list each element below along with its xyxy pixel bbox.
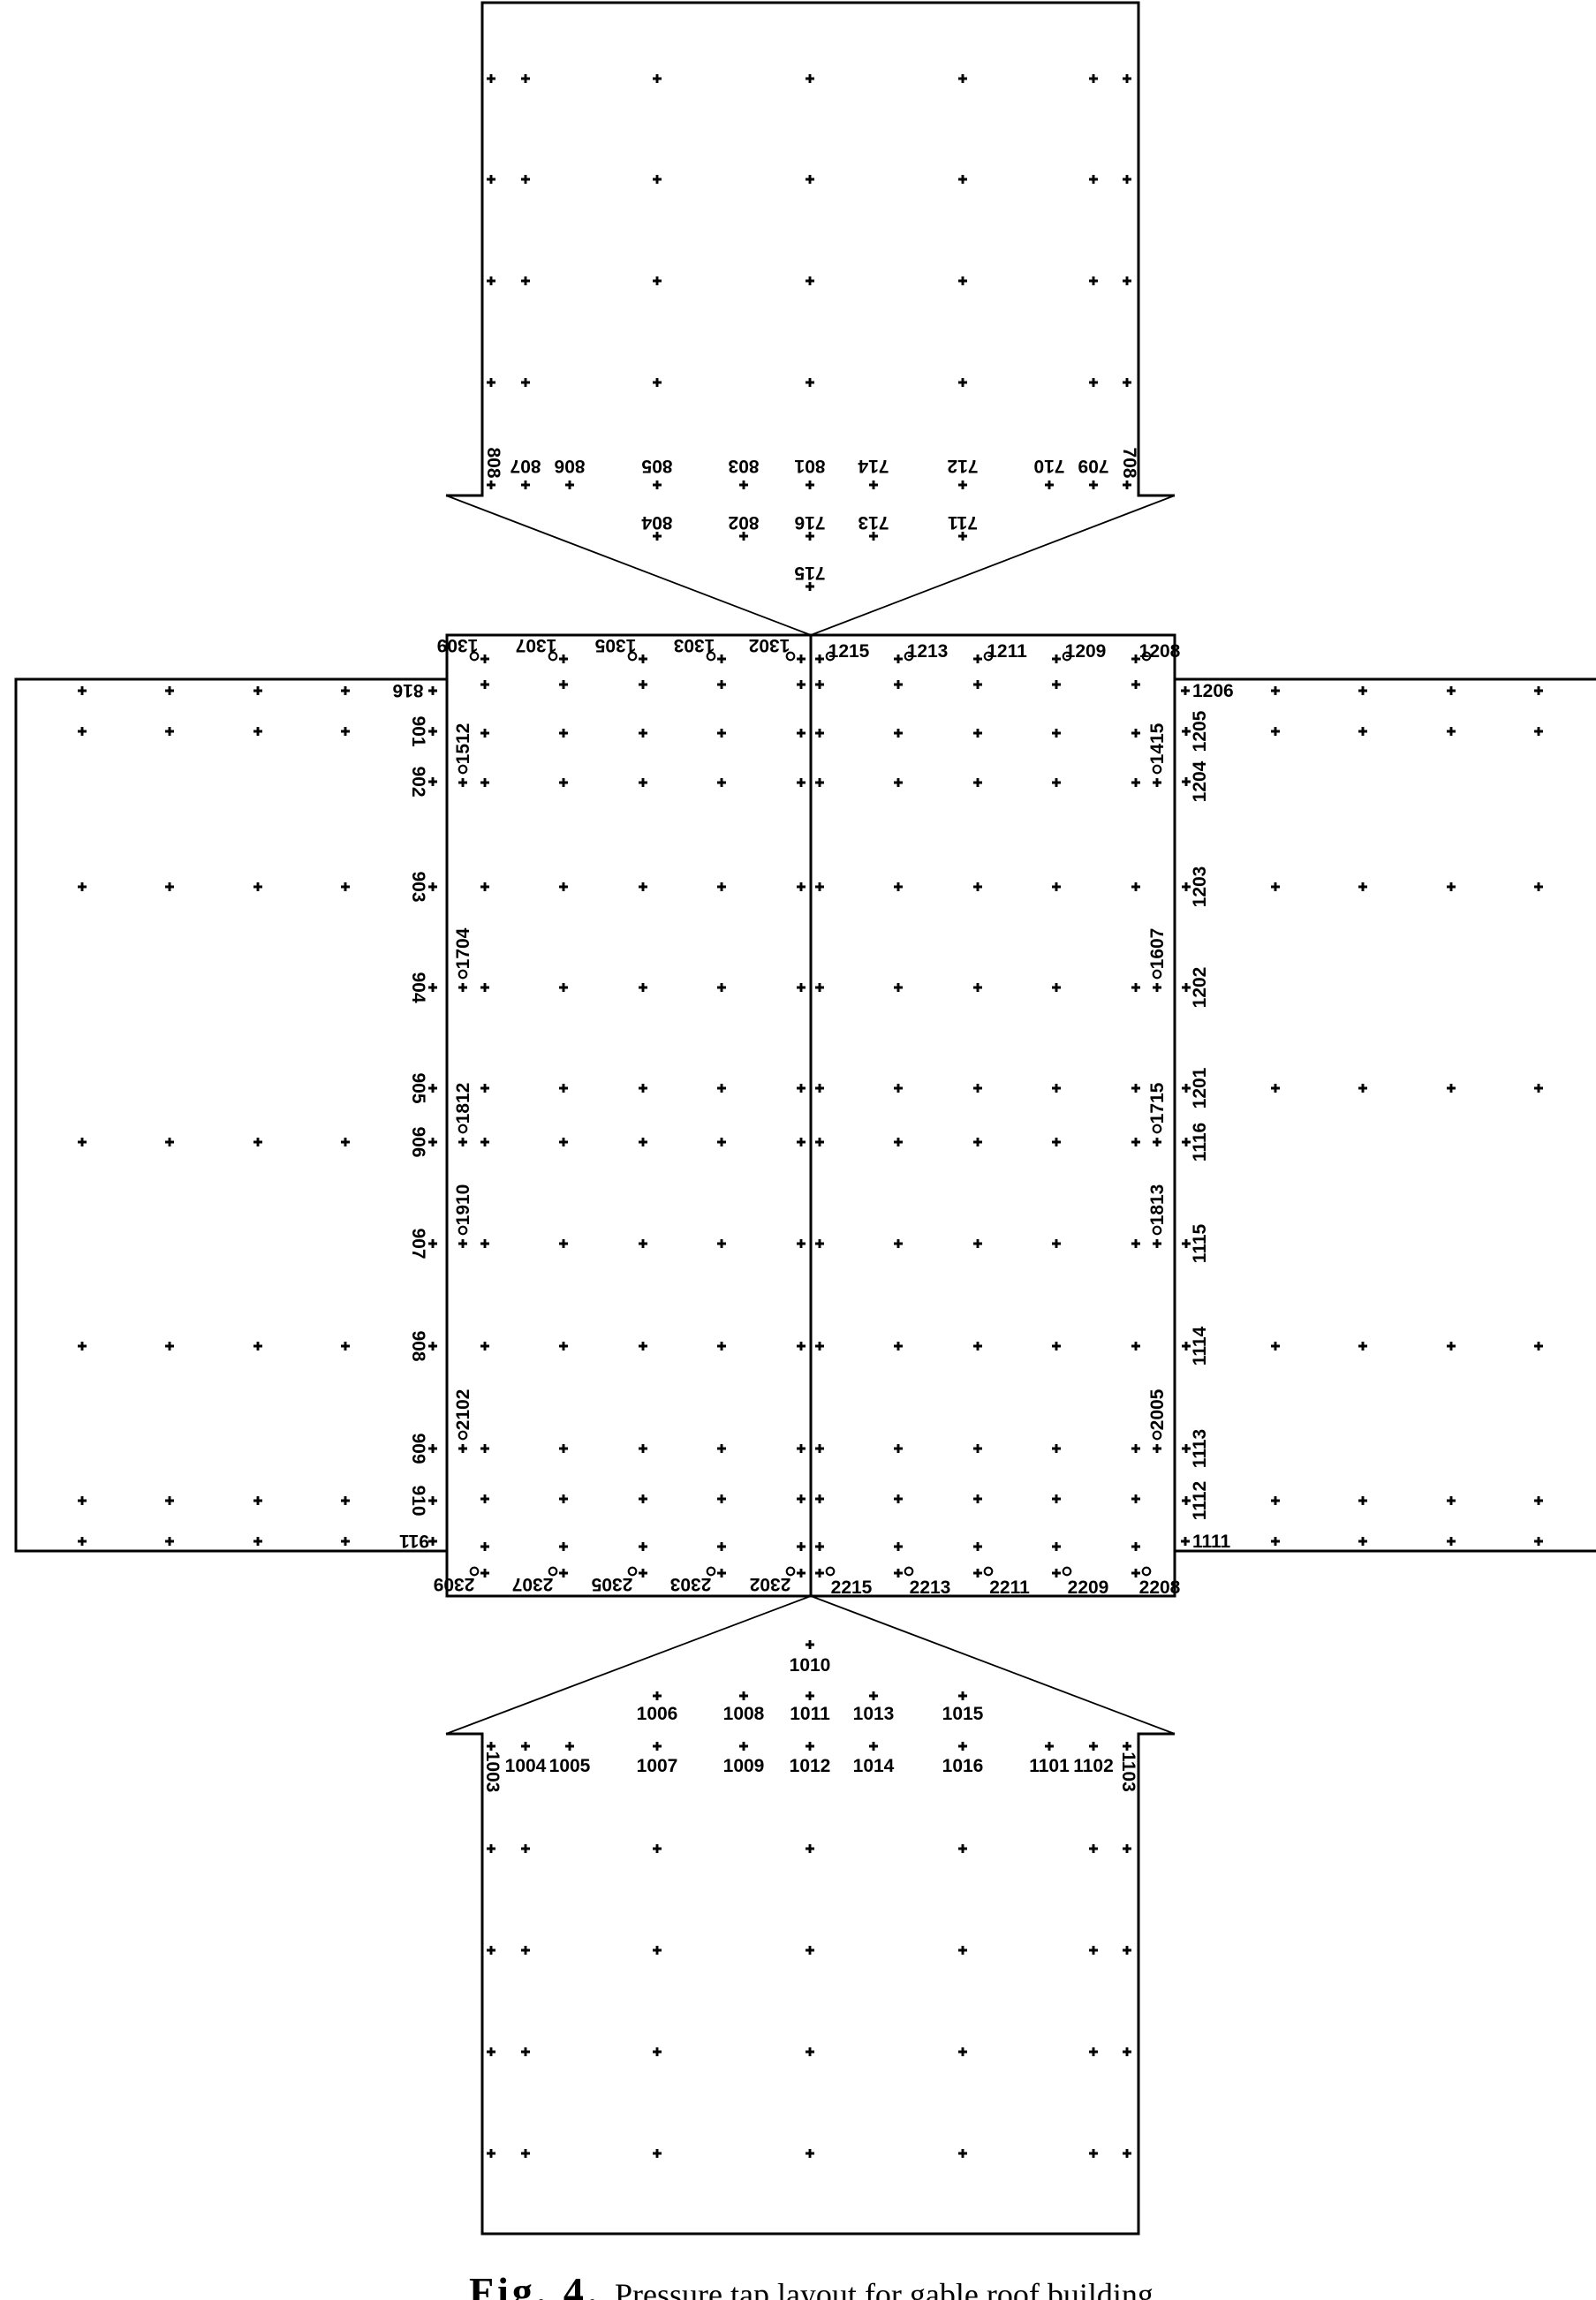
svg-text:1202: 1202	[1190, 967, 1210, 1009]
svg-text:1309: 1309	[437, 635, 479, 655]
svg-text:802: 802	[728, 512, 759, 533]
svg-text:910: 910	[408, 1485, 428, 1516]
svg-text:Pressure tap layout for gable: Pressure tap layout for gable roof build…	[615, 2277, 1154, 2300]
svg-text:Fig. 4.: Fig. 4.	[469, 2269, 601, 2300]
svg-text:816: 816	[392, 680, 423, 700]
svg-text:712: 712	[947, 456, 978, 476]
svg-text:1003: 1003	[482, 1751, 503, 1793]
svg-text:807: 807	[510, 456, 541, 476]
svg-text:1010: 1010	[790, 1655, 831, 1676]
svg-text:904: 904	[408, 972, 428, 1002]
svg-text:1007: 1007	[637, 1756, 678, 1776]
svg-text:1008: 1008	[723, 1704, 765, 1724]
svg-text:2209: 2209	[1068, 1577, 1109, 1598]
svg-text:902: 902	[408, 766, 428, 797]
svg-text:1013: 1013	[853, 1704, 895, 1724]
svg-text:1512: 1512	[453, 723, 473, 765]
svg-text:711: 711	[948, 512, 978, 533]
svg-text:1812: 1812	[453, 1083, 473, 1124]
svg-text:906: 906	[408, 1126, 428, 1157]
svg-text:1113: 1113	[1190, 1429, 1210, 1468]
svg-text:806: 806	[554, 456, 585, 476]
svg-text:1204: 1204	[1190, 760, 1210, 802]
svg-text:2102: 2102	[453, 1389, 473, 1431]
svg-text:1015: 1015	[942, 1704, 984, 1724]
svg-text:1205: 1205	[1190, 710, 1210, 752]
svg-text:1415: 1415	[1147, 723, 1168, 764]
svg-text:2309: 2309	[434, 1574, 475, 1594]
svg-text:1910: 1910	[453, 1184, 473, 1226]
svg-text:2215: 2215	[831, 1577, 873, 1598]
svg-text:905: 905	[408, 1072, 428, 1103]
svg-text:1103: 1103	[1118, 1751, 1138, 1792]
svg-text:715: 715	[794, 563, 825, 583]
svg-text:1005: 1005	[549, 1756, 591, 1776]
svg-text:716: 716	[794, 512, 825, 533]
svg-text:1607: 1607	[1147, 928, 1168, 970]
svg-text:1203: 1203	[1190, 866, 1210, 908]
svg-text:1302: 1302	[749, 635, 790, 655]
svg-text:1303: 1303	[674, 635, 715, 655]
svg-text:2302: 2302	[750, 1574, 791, 1594]
svg-text:1112: 1112	[1190, 1481, 1210, 1520]
svg-text:713: 713	[858, 512, 889, 533]
svg-text:2307: 2307	[512, 1574, 554, 1594]
svg-text:709: 709	[1078, 456, 1108, 476]
svg-text:1111: 1111	[1192, 1532, 1231, 1552]
svg-text:2213: 2213	[910, 1577, 951, 1598]
svg-text:1213: 1213	[907, 641, 949, 662]
svg-text:1004: 1004	[505, 1756, 547, 1776]
svg-text:805: 805	[641, 456, 672, 476]
svg-text:903: 903	[408, 871, 428, 902]
svg-text:1006: 1006	[637, 1704, 678, 1724]
svg-text:808: 808	[483, 447, 503, 478]
svg-text:1704: 1704	[453, 927, 473, 969]
svg-text:2208: 2208	[1139, 1577, 1181, 1598]
svg-text:1305: 1305	[594, 635, 636, 655]
svg-text:1116: 1116	[1190, 1123, 1210, 1161]
svg-text:1114: 1114	[1190, 1326, 1210, 1366]
svg-text:804: 804	[641, 512, 672, 533]
svg-text:1215: 1215	[828, 641, 870, 662]
svg-text:1014: 1014	[853, 1756, 895, 1776]
svg-text:1011: 1011	[790, 1704, 830, 1724]
svg-text:1715: 1715	[1147, 1082, 1168, 1124]
svg-text:1307: 1307	[516, 635, 557, 655]
svg-text:911: 911	[399, 1531, 429, 1551]
svg-text:1209: 1209	[1065, 641, 1107, 662]
svg-text:2005: 2005	[1147, 1388, 1168, 1430]
svg-text:908: 908	[408, 1330, 428, 1361]
svg-text:901: 901	[408, 715, 428, 746]
svg-text:1211: 1211	[987, 641, 1027, 662]
svg-text:1208: 1208	[1139, 641, 1181, 662]
svg-text:803: 803	[728, 456, 759, 476]
svg-text:1012: 1012	[790, 1756, 831, 1776]
svg-text:1016: 1016	[942, 1756, 984, 1776]
svg-text:801: 801	[794, 456, 825, 476]
svg-text:2305: 2305	[591, 1574, 632, 1594]
svg-text:2211: 2211	[989, 1577, 1030, 1598]
svg-text:1206: 1206	[1192, 681, 1234, 701]
svg-text:1009: 1009	[723, 1756, 765, 1776]
svg-text:1813: 1813	[1147, 1184, 1168, 1226]
svg-text:909: 909	[408, 1433, 428, 1464]
svg-text:714: 714	[858, 456, 889, 476]
svg-text:710: 710	[1033, 456, 1064, 476]
svg-text:1101: 1101	[1029, 1756, 1070, 1776]
svg-text:2303: 2303	[670, 1574, 712, 1594]
svg-text:1201: 1201	[1190, 1067, 1210, 1108]
svg-text:708: 708	[1119, 447, 1139, 478]
svg-text:907: 907	[408, 1228, 428, 1259]
svg-text:1115: 1115	[1190, 1223, 1210, 1263]
svg-text:1102: 1102	[1073, 1756, 1114, 1776]
